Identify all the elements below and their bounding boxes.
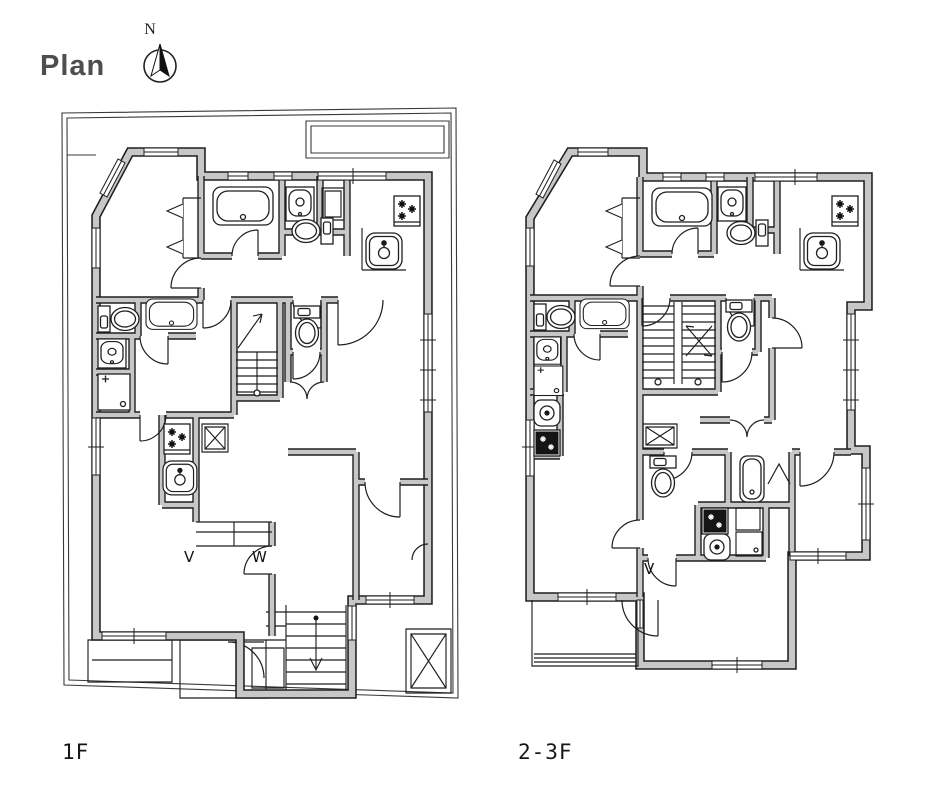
toilet-icon — [726, 300, 752, 341]
closet — [196, 522, 272, 546]
toilet-icon — [98, 306, 139, 332]
folding-door-marks — [606, 204, 622, 254]
bathtub-icon — [213, 187, 273, 225]
washbasin-icon — [98, 339, 126, 368]
kitchen-sink-icon — [366, 233, 402, 269]
stove-icon — [394, 196, 420, 226]
closet-mark-v: V — [644, 560, 655, 578]
washbasin-icon — [534, 337, 561, 364]
cabinet — [322, 188, 344, 220]
pipe-shaft-icon — [202, 424, 228, 452]
stove-icon — [164, 424, 190, 454]
balcony — [532, 600, 638, 666]
utility-sink-icon — [534, 400, 560, 426]
toilet-icon — [292, 218, 333, 244]
floor-plan-2-3f: V — [522, 148, 874, 673]
staircase-icon — [642, 302, 716, 385]
windows — [522, 148, 874, 673]
floor-plan-1f: V W — [62, 108, 458, 698]
double-door — [290, 382, 324, 399]
bathtub-icon — [652, 188, 712, 226]
toilet-icon — [727, 220, 768, 246]
staircase-icon — [236, 314, 278, 396]
doors — [140, 230, 428, 574]
stove-icon — [702, 508, 728, 534]
parking-space — [306, 121, 449, 158]
stove-icon — [534, 430, 560, 456]
toilet-icon — [650, 456, 676, 497]
fixtures — [534, 187, 858, 560]
kitchen-sink-icon — [704, 534, 730, 560]
floor-label-1f: 1F — [62, 740, 89, 764]
bathtub-icon — [580, 299, 629, 329]
washing-machine-icon — [534, 366, 563, 396]
washbasin-icon — [718, 187, 746, 221]
floor-plan-sheet: Plan N — [0, 0, 926, 800]
plans-drawing: V W — [0, 0, 926, 800]
toilet-icon — [294, 306, 320, 347]
toilet-icon — [534, 304, 575, 330]
kitchen-sink-icon — [163, 461, 197, 495]
closet-mark-v: V — [184, 548, 195, 566]
washbasin-icon — [286, 187, 314, 221]
folding-door-marks — [167, 204, 183, 254]
floor-label-2-3f: 2-3F — [518, 740, 573, 764]
stove-icon — [832, 196, 858, 226]
bathtub-icon — [740, 456, 764, 502]
building-walls — [530, 152, 868, 665]
double-door — [730, 420, 764, 437]
elevator-icon — [406, 629, 451, 693]
pipe-shaft-icon — [643, 424, 677, 448]
fixtures — [98, 187, 420, 495]
kitchen-sink-icon — [804, 233, 840, 269]
fold-door-mark — [768, 464, 790, 484]
washing-machine-icon — [98, 374, 130, 410]
bathtub-icon — [146, 299, 197, 329]
closet-mark-w: W — [252, 548, 267, 566]
